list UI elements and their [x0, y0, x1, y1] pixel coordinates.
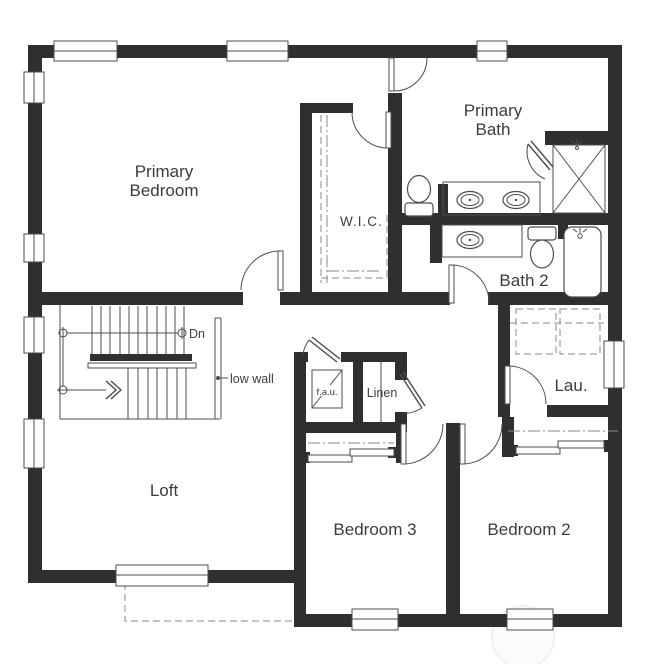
floor-plan-drawing: Primary Bedroom Primary Bath W.I.C. Bath… — [0, 0, 654, 664]
stair-handrail-lower — [88, 363, 196, 368]
stair-treads-upper — [92, 306, 184, 355]
room-labels: Primary Bedroom Primary Bath W.I.C. Bath… — [130, 101, 588, 539]
wic-shelving — [321, 115, 388, 283]
label-bedroom3: Bedroom 3 — [333, 520, 416, 539]
washer-icon — [516, 309, 556, 354]
door-bedroom3 — [401, 424, 443, 464]
door-fau — [303, 337, 340, 362]
bathtub-icon — [564, 227, 601, 297]
window — [116, 565, 208, 586]
sink-icon — [503, 192, 529, 209]
bypass-door — [308, 455, 352, 462]
window — [54, 41, 117, 61]
bypass-door — [558, 441, 604, 448]
label-primary-bedroom-line2: Bedroom — [130, 181, 199, 200]
door-laundry — [505, 366, 546, 404]
label-linen: Linen — [367, 386, 398, 400]
label-wic: W.I.C. — [340, 214, 383, 229]
window — [477, 41, 507, 61]
bypass-door — [350, 449, 394, 456]
stair-outline — [60, 305, 220, 419]
label-loft: Loft — [150, 481, 179, 500]
bedroom3-closet — [308, 443, 394, 462]
windows — [24, 41, 624, 630]
door-bath2 — [449, 265, 489, 303]
bypass-door — [516, 447, 560, 454]
roof-below-dashed-outline — [125, 583, 294, 621]
primary-bath-fixtures — [405, 139, 605, 216]
label-primary-bath-line1: Primary — [464, 101, 523, 120]
bedroom2-closet — [508, 431, 618, 454]
laundry-appliances — [510, 309, 604, 354]
low-wall-leader — [216, 376, 228, 380]
toilet-icon — [528, 227, 556, 268]
label-laundry: Lau. — [554, 376, 587, 395]
floor-plan-page: Primary Bedroom Primary Bath W.I.C. Bath… — [0, 0, 654, 664]
window — [507, 609, 553, 630]
window — [24, 419, 44, 468]
stair-handrail — [90, 354, 192, 361]
door-wic — [352, 112, 391, 148]
door-primary-bedroom — [241, 251, 283, 290]
annotation-labels: Dn low wall — [189, 327, 274, 386]
door-bedroom2 — [460, 424, 502, 464]
label-bedroom2: Bedroom 2 — [487, 520, 570, 539]
toilet-icon — [405, 176, 433, 217]
door-primary-bath — [389, 58, 427, 91]
label-low-wall: low wall — [230, 372, 274, 386]
sink-icon — [457, 192, 483, 209]
window — [24, 234, 44, 262]
door-shower — [527, 141, 553, 179]
label-bath2: Bath 2 — [499, 271, 548, 290]
exterior-walls — [28, 45, 622, 627]
label-primary-bedroom-line1: Primary — [135, 162, 194, 181]
window — [604, 341, 624, 388]
dryer-icon — [560, 309, 600, 354]
label-primary-bath-line2: Bath — [476, 120, 511, 139]
sink-icon — [457, 232, 483, 249]
window — [352, 609, 398, 630]
window — [24, 72, 44, 103]
window — [227, 41, 288, 61]
window — [24, 317, 44, 353]
stair-treads-lower — [128, 368, 186, 419]
label-stair-down: Dn — [189, 327, 205, 341]
label-fau: f.a.u. — [316, 387, 337, 398]
low-wall — [215, 318, 221, 419]
staircase — [57, 305, 228, 419]
shower-icon — [553, 139, 605, 213]
